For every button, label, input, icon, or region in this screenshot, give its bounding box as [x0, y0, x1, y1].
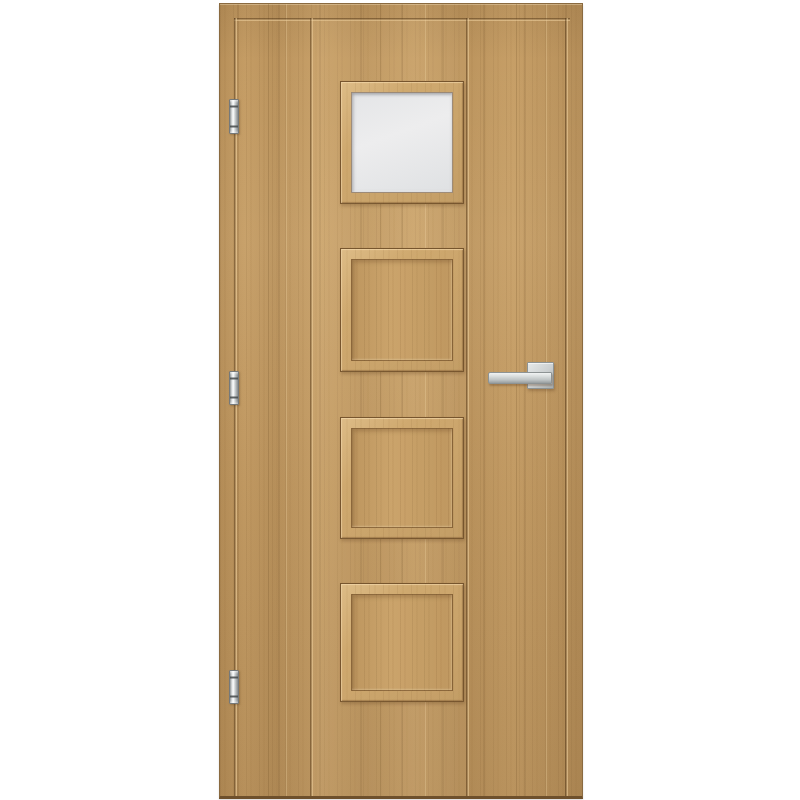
- wood-seam: [516, 4, 517, 796]
- wood-seam: [268, 4, 269, 796]
- frosted-glass: [351, 92, 453, 193]
- wood-panel-2-field: [351, 259, 453, 361]
- wood-panel-3: [340, 417, 464, 539]
- hinge-bottom-icon: [229, 670, 239, 704]
- door-handle-lever: [488, 372, 552, 384]
- hinge-top-icon: [229, 99, 239, 134]
- wood-panel-4: [340, 583, 464, 702]
- groove-top: [234, 18, 570, 21]
- groove-column-right: [466, 18, 469, 796]
- hinge-middle-icon: [229, 371, 239, 405]
- wood-panel-4-field: [351, 594, 453, 691]
- wood-panel-3-field: [351, 428, 453, 528]
- groove-column-left: [310, 18, 313, 796]
- glass-panel: [340, 81, 464, 204]
- groove-right-border: [565, 18, 568, 796]
- wood-seam: [546, 4, 547, 796]
- door: [219, 3, 583, 799]
- wood-panel-2: [340, 248, 464, 372]
- wood-seam: [286, 4, 287, 796]
- product-image: [0, 0, 800, 800]
